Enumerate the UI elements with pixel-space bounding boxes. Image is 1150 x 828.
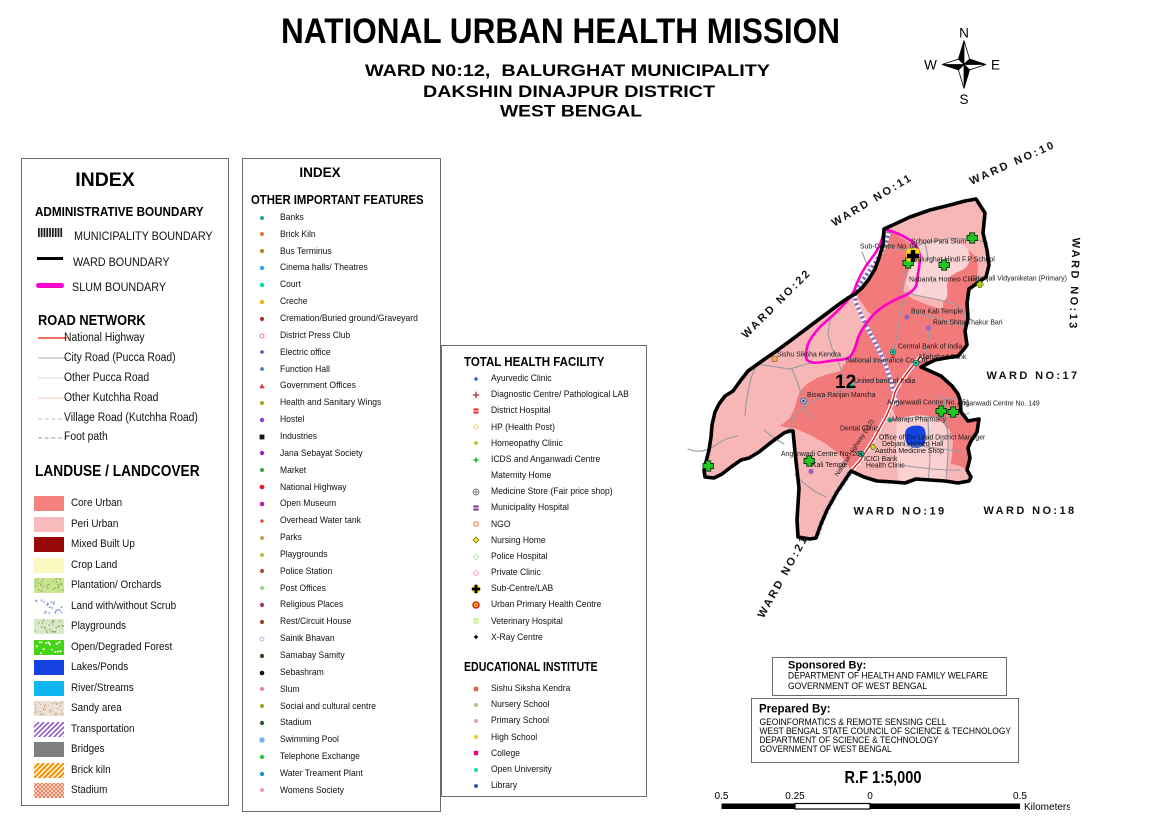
svg-text:GOVERNMENT OF WEST BENGAL: GOVERNMENT OF WEST BENGAL <box>788 681 928 692</box>
svg-text:WARD NO:18: WARD NO:18 <box>983 505 1076 517</box>
svg-text:Debjani Homeo Hall: Debjani Homeo Hall <box>882 441 944 448</box>
svg-text:Balurghat Hindi F.P School: Balurghat Hindi F.P School <box>913 257 995 264</box>
svg-text:United bank of India: United bank of India <box>854 378 915 385</box>
svg-text:0: 0 <box>867 791 873 802</box>
svg-text:Sub-Centre No. 04: Sub-Centre No. 04 <box>860 244 918 251</box>
svg-text:Central Bank of India: Central Bank of India <box>898 344 963 351</box>
svg-text:WARD NO:17: WARD NO:17 <box>986 370 1079 382</box>
svg-text:S: S <box>959 92 968 107</box>
svg-text:Gitanjali Vidyaniketan (Primar: Gitanjali Vidyaniketan (Primary) <box>971 276 1067 283</box>
svg-text:Dental Clinic: Dental Clinic <box>840 426 879 433</box>
svg-text:R.F 1:5,000: R.F 1:5,000 <box>845 767 922 787</box>
svg-text:0.25: 0.25 <box>785 791 805 802</box>
svg-text:W: W <box>924 58 937 73</box>
svg-text:Aastha Medicine Shop: Aastha Medicine Shop <box>875 448 944 455</box>
svg-text:Biswa Ranjan Mancha: Biswa Ranjan Mancha <box>807 392 876 399</box>
svg-text:12: 12 <box>835 372 856 393</box>
svg-text:GOVERNMENT OF WEST BENGAL: GOVERNMENT OF WEST BENGAL <box>760 744 893 755</box>
svg-text:Anganwadi Centre No. 149: Anganwadi Centre No. 149 <box>957 401 1040 408</box>
svg-text:N: N <box>959 26 969 41</box>
svg-text:Prepared By:: Prepared By: <box>759 704 831 716</box>
svg-text:School Para Slum: School Para Slum <box>911 239 966 246</box>
svg-text:WARD NO:19: WARD NO:19 <box>853 506 946 518</box>
svg-text:0.5: 0.5 <box>1013 791 1027 802</box>
svg-text:Maraju Pharmacy: Maraju Pharmacy <box>892 417 947 424</box>
svg-text:WARD NO:13: WARD NO:13 <box>1066 237 1081 330</box>
svg-text:Health Clinic: Health Clinic <box>866 463 905 470</box>
svg-text:Sishu Siksha Kendra: Sishu Siksha Kendra <box>777 352 841 359</box>
svg-text:NATIONAL URBAN HEALTH MISSION: NATIONAL URBAN HEALTH MISSION <box>281 12 840 51</box>
svg-text:E: E <box>991 58 1000 73</box>
svg-text:0.5: 0.5 <box>715 791 729 802</box>
svg-text:Nabanita Homeo Clinic: Nabanita Homeo Clinic <box>909 277 980 284</box>
svg-text:WARD NO:21: WARD NO:21 <box>756 533 812 620</box>
svg-text:WEST BENGAL: WEST BENGAL <box>500 103 642 121</box>
svg-text:Ram Shita Thakur Bari: Ram Shita Thakur Bari <box>933 320 1003 327</box>
svg-text:DAKSHIN DINAJPUR DISTRICT: DAKSHIN DINAJPUR DISTRICT <box>423 83 715 101</box>
svg-text:WARD NO:10: WARD NO:10 <box>968 139 1058 188</box>
svg-text:National Insurance Co. Ltd: National Insurance Co. Ltd <box>846 358 928 365</box>
svg-text:Kilometers: Kilometers <box>1024 802 1070 813</box>
svg-text:Bura Kali Temple: Bura Kali Temple <box>911 309 963 316</box>
svg-text:WARD N0:12, BALURGHAT MUNICIP: WARD N0:12, BALURGHAT MUNICIPALITY <box>365 62 770 80</box>
